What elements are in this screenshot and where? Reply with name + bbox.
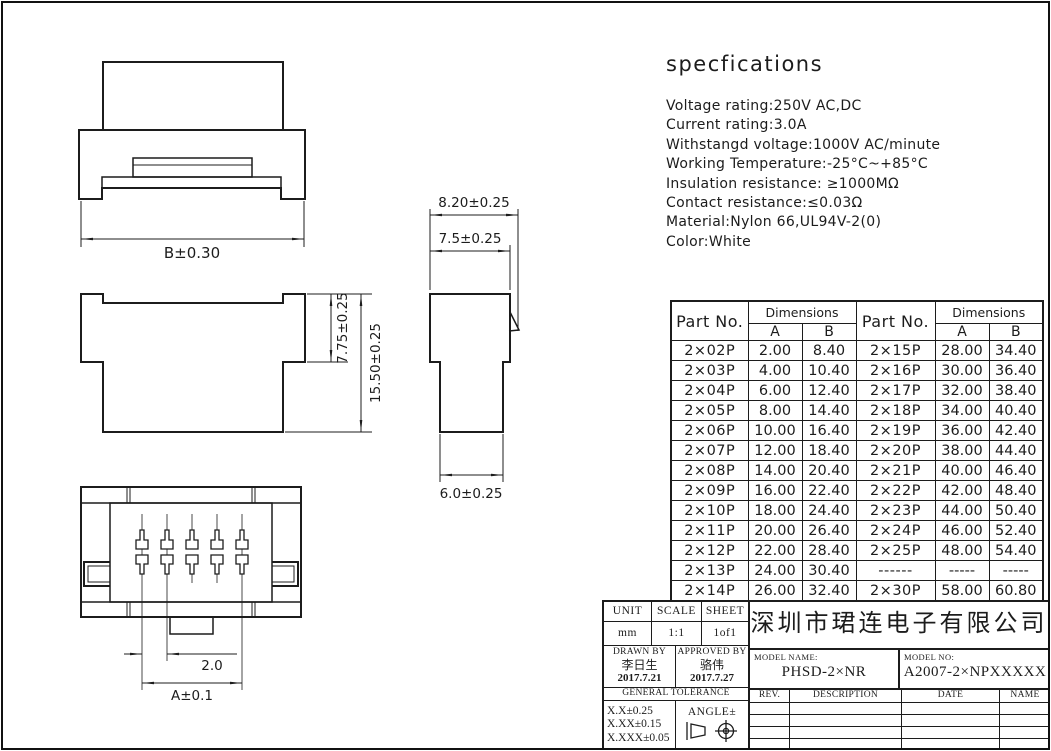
part-no-cell: 2×17P [856,381,935,401]
dim-b-cell: 18.40 [802,441,856,461]
table-row: 2×07P 12.00 18.40 2×20P 38.00 44.40 [671,441,1043,461]
table-row: 2×05P 8.00 14.40 2×18P 34.00 40.40 [671,401,1043,421]
spec-line-contact: Contact resistance:≤0.03Ω [666,194,940,213]
dim-b-cell: ----- [989,561,1043,581]
spec-line-current: Current rating:3.0A [666,116,940,135]
table-row: 2×09P 16.00 22.40 2×22P 42.00 48.40 [671,481,1043,501]
description-empty-cell [790,703,902,715]
parts-dimension-table: Part No. Dimensions Part No. Dimensions … [670,300,1044,602]
dim-b-label: B±0.30 [164,244,220,262]
table-row: 2×12P 22.00 28.40 2×25P 48.00 54.40 [671,541,1043,561]
name-empty-cell [1000,703,1050,715]
part-no-cell: 2×02P [671,341,748,361]
dim-b-cell: 26.40 [802,521,856,541]
rev-empty-cell [748,715,790,727]
dim-b-cell: 44.40 [989,441,1043,461]
dim-b-cell: 46.40 [989,461,1043,481]
scale-value: 1:1 [652,622,702,646]
part-no-cell: 2×10P [671,501,748,521]
dim-a-cell: 16.00 [748,481,802,501]
dim-a-cell: 22.00 [748,541,802,561]
table-row: 2×03P 4.00 10.40 2×16P 30.00 36.40 [671,361,1043,381]
name-empty-cell [1000,727,1050,739]
dim-a-cell: ----- [935,561,989,581]
dim-a-cell: 42.00 [935,481,989,501]
date-empty-cell [902,703,1000,715]
model-name-label: MODEL NAME: [750,650,898,662]
drawn-by-name: 李日生 [621,659,657,672]
dim-b-cell: 24.40 [802,501,856,521]
dim-a-cell: 34.00 [935,401,989,421]
name-header: NAME [1000,690,1050,703]
dim-1550-label: 15.50±0.25 [368,323,384,403]
top-view-with-pins: 2.0 A±0.1 [81,487,301,704]
tolerance-x: X.X±0.25 [607,705,653,717]
dim-20-label: 2.0 [201,658,222,674]
part-no-cell: 2×19P [856,421,935,441]
pin-contacts [136,530,248,574]
description-empty-cell [790,739,902,750]
model-no-value: A2007-2×NPXXXXX [900,665,1050,681]
col-header-part-no-right: Part No. [856,301,935,341]
part-no-cell: 2×20P [856,441,935,461]
part-no-cell: 2×04P [671,381,748,401]
dim-b-cell: 34.40 [989,341,1043,361]
part-no-cell: ------ [856,561,935,581]
side-section-view: 7.75±0.25 15.50±0.25 [81,292,384,432]
company-name: 深圳市珺连电子有限公司 [748,602,1048,650]
col-header-a-right: A [935,324,989,341]
dim-a-cell: 6.00 [748,381,802,401]
dim-a-cell: 2.00 [748,341,802,361]
part-no-cell: 2×25P [856,541,935,561]
description-empty-cell [790,715,902,727]
dim-b-cell: 20.40 [802,461,856,481]
dim-b-cell: 52.40 [989,521,1043,541]
dim-b-cell: 42.40 [989,421,1043,441]
table-row: 2×02P 2.00 8.40 2×15P 28.00 34.40 [671,341,1043,361]
dim-a-cell: 20.00 [748,521,802,541]
dim-b-cell: 40.40 [989,401,1043,421]
dim-b-cell: 38.40 [989,381,1043,401]
name-empty-cell [1000,715,1050,727]
part-no-cell: 2×12P [671,541,748,561]
col-header-dimensions-left: Dimensions [748,301,856,324]
part-no-cell: 2×21P [856,461,935,481]
unit-value: mm [604,622,652,646]
date-empty-cell [902,715,1000,727]
dim-a-cell: 44.00 [935,501,989,521]
spec-line-temperature: Working Temperature:-25°C~+85°C [666,155,940,174]
dim-a-cell: 8.00 [748,401,802,421]
part-no-cell: 2×16P [856,361,935,381]
col-header-b-left: B [802,324,856,341]
date-header: DATE [902,690,1000,703]
dim-a-cell: 48.00 [935,541,989,561]
dim-a-cell: 58.00 [935,581,989,602]
date-empty-cell [902,739,1000,750]
scale-header: SCALE [652,602,702,622]
dim-a-cell: 12.00 [748,441,802,461]
unit-header: UNIT [604,602,652,622]
drawing-sheet: B±0.30 7.75±0.25 15.50±0.25 8.20±0.25 7.… [0,0,1051,751]
spec-line-material: Material:Nylon 66,UL94V-2(0) [666,213,940,232]
dim-b-cell: 30.40 [802,561,856,581]
dim-a-cell: 28.00 [935,341,989,361]
part-no-cell: 2×07P [671,441,748,461]
part-no-cell: 2×13P [671,561,748,581]
rev-header: REV. [748,690,790,703]
end-view: 8.20±0.25 7.5±0.25 6.0±0.25 [430,195,519,502]
date-empty-cell [902,727,1000,739]
table-row: 2×14P 26.00 32.40 2×30P 58.00 60.80 [671,581,1043,602]
description-empty-cell [790,727,902,739]
dim-60-label: 6.0±0.25 [440,486,503,502]
drawn-by-date: 2017.7.21 [618,673,662,685]
general-tolerance-header: GENERAL TOLERANCE [604,688,748,701]
dim-b-cell: 28.40 [802,541,856,561]
tolerance-xxx: X.XXX±0.05 [607,732,670,744]
dim-75-label: 7.5±0.25 [439,231,502,247]
dim-a-cell: 30.00 [935,361,989,381]
col-header-dimensions-right: Dimensions [935,301,1043,324]
part-no-cell: 2×03P [671,361,748,381]
sheet-header: SHEET [702,602,748,622]
dim-a-cell: 24.00 [748,561,802,581]
part-no-cell: 2×05P [671,401,748,421]
dim-b-cell: 22.40 [802,481,856,501]
spec-line-voltage: Voltage rating:250V AC,DC [666,97,940,116]
title-block: UNIT SCALE SHEET mm 1:1 1of1 DRAWN BY 李日… [602,600,1048,748]
part-no-cell: 2×06P [671,421,748,441]
table-row: 2×11P 20.00 26.40 2×24P 46.00 52.40 [671,521,1043,541]
parts-table-body: 2×02P 2.00 8.40 2×15P 28.00 34.40 2×03P … [671,341,1043,602]
dim-b-cell: 10.40 [802,361,856,381]
tolerance-values: X.X±0.25 X.XX±0.15 X.XXX±0.05 [604,701,676,748]
part-no-cell: 2×09P [671,481,748,501]
dim-b-cell: 36.40 [989,361,1043,381]
part-no-cell: 2×14P [671,581,748,602]
approved-by-label: APPROVED BY [677,648,746,658]
rev-empty-cell [748,727,790,739]
table-row: 2×06P 10.00 16.40 2×19P 36.00 42.40 [671,421,1043,441]
dim-a-cell: 36.00 [935,421,989,441]
projection-symbols [681,719,743,743]
dim-a-cell: 4.00 [748,361,802,381]
dim-775-label: 7.75±0.25 [335,292,351,363]
dim-a-cell: 32.00 [935,381,989,401]
part-no-cell: 2×30P [856,581,935,602]
bottom-tab [170,617,213,634]
part-no-cell: 2×22P [856,481,935,501]
dim-a-cell: 40.00 [935,461,989,481]
spec-line-color: Color:White [666,233,940,252]
col-header-a-left: A [748,324,802,341]
dim-b-cell: 60.80 [989,581,1043,602]
part-no-cell: 2×11P [671,521,748,541]
approved-by-cell: APPROVED BY 骆伟 2017.7.27 [676,646,748,688]
angle-cell: ANGLE± [676,701,748,748]
part-no-cell: 2×08P [671,461,748,481]
model-no-label: MODEL NO: [900,650,1050,662]
rev-empty-cell [748,703,790,715]
table-row: 2×10P 18.00 24.40 2×23P 44.00 50.40 [671,501,1043,521]
dim-a-cell: 10.00 [748,421,802,441]
model-no-cell: MODEL NO: A2007-2×NPXXXXX [900,650,1050,690]
sheet-value: 1of1 [702,622,748,646]
dim-b-cell: 14.40 [802,401,856,421]
dim-b-cell: 16.40 [802,421,856,441]
angle-label: ANGLE± [688,706,736,718]
dim-820-label: 8.20±0.25 [438,195,509,211]
part-no-cell: 2×18P [856,401,935,421]
spec-line-withstand: Withstangd voltage:1000V AC/minute [666,136,940,155]
model-name-cell: MODEL NAME: PHSD-2×NR [748,650,900,690]
rev-empty-cell [748,739,790,750]
table-row: 2×13P 24.00 30.40 ------ ----- ----- [671,561,1043,581]
dim-a-cell: 26.00 [748,581,802,602]
dim-b-cell: 48.40 [989,481,1043,501]
dim-a-cell: 18.00 [748,501,802,521]
dim-b-cell: 54.40 [989,541,1043,561]
spec-list: Voltage rating:250V AC,DC Current rating… [666,97,940,252]
part-no-cell: 2×23P [856,501,935,521]
table-row: 2×08P 14.00 20.40 2×21P 40.00 46.40 [671,461,1043,481]
spec-title: specfications [666,52,823,76]
model-name-value: PHSD-2×NR [750,665,898,681]
dim-b-cell: 8.40 [802,341,856,361]
tolerance-xx: X.XX±0.15 [607,718,661,730]
part-no-cell: 2×24P [856,521,935,541]
dim-b-cell: 32.40 [802,581,856,602]
dim-a-cell: 38.00 [935,441,989,461]
spec-line-insulation: Insulation resistance: ≥1000MΩ [666,175,940,194]
description-header: DESCRIPTION [790,690,902,703]
front-view: B±0.30 [79,62,305,262]
dim-a-label: A±0.1 [171,688,213,704]
col-header-b-right: B [989,324,1043,341]
dim-a-cell: 46.00 [935,521,989,541]
dim-b-cell: 12.40 [802,381,856,401]
drawn-by-cell: DRAWN BY 李日生 2017.7.21 [604,646,676,688]
col-header-part-no-left: Part No. [671,301,748,341]
dim-a-cell: 14.00 [748,461,802,481]
name-empty-cell [1000,739,1050,750]
part-no-cell: 2×15P [856,341,935,361]
drawn-by-label: DRAWN BY [613,648,666,658]
approved-by-date: 2017.7.27 [690,673,734,685]
dim-b-cell: 50.40 [989,501,1043,521]
approved-by-name: 骆伟 [700,659,724,672]
table-row: 2×04P 6.00 12.40 2×17P 32.00 38.40 [671,381,1043,401]
